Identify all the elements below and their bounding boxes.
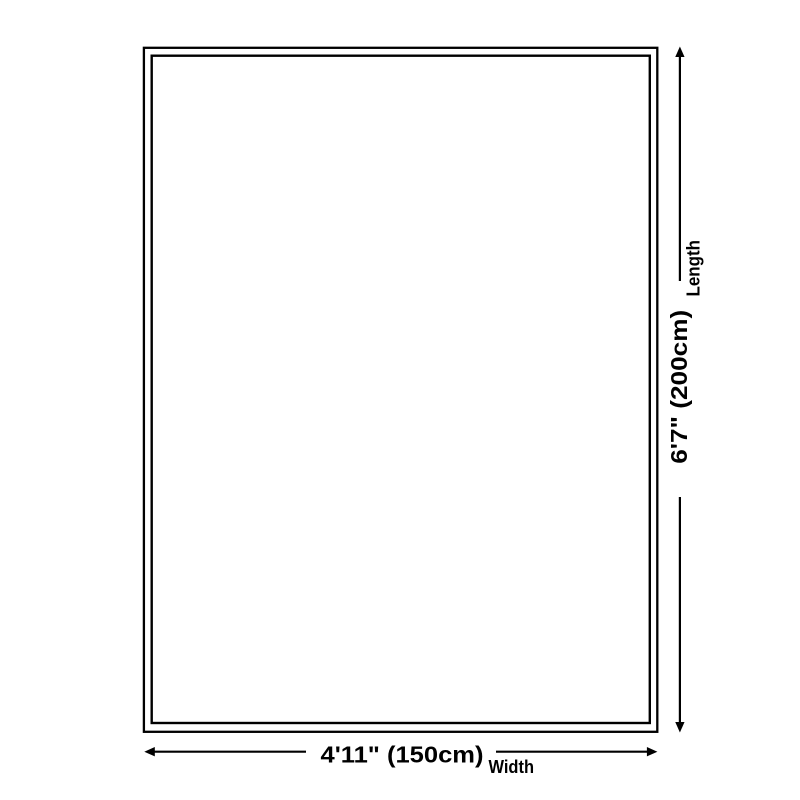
svg-text:Length: Length xyxy=(684,240,704,297)
svg-text:6'7" (200cm): 6'7" (200cm) xyxy=(666,310,692,464)
svg-text:4'11" (150cm): 4'11" (150cm) xyxy=(321,741,484,767)
svg-text:Width: Width xyxy=(489,757,535,777)
